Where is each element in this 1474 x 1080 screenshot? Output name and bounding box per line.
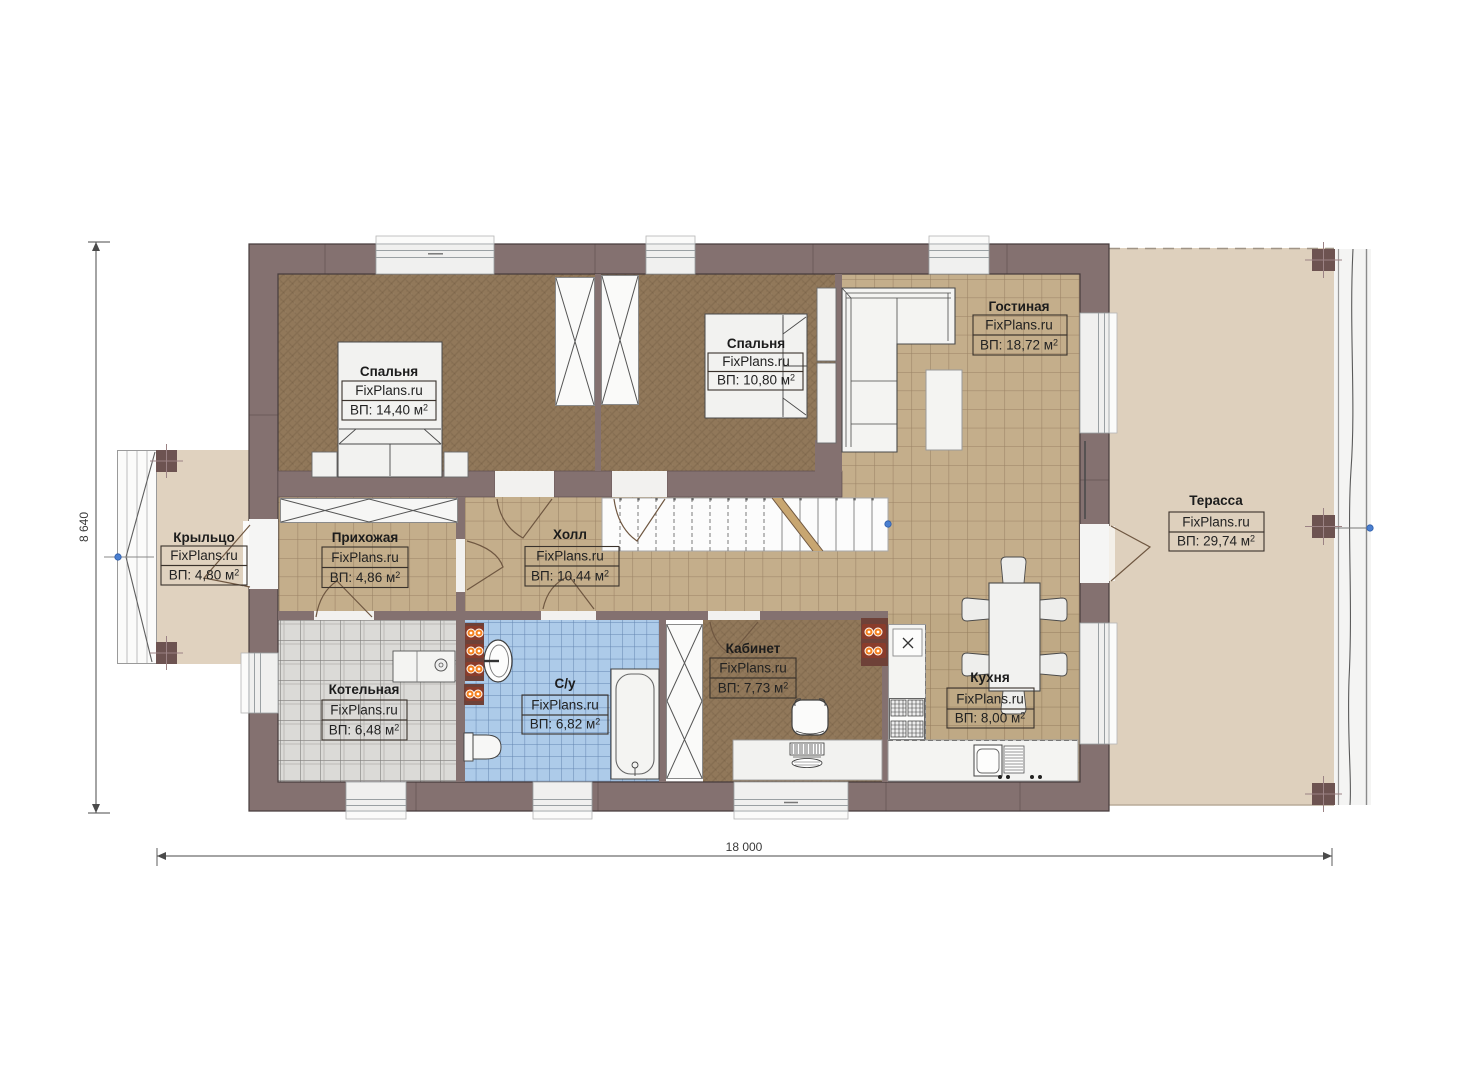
svg-text:Кухня: Кухня bbox=[970, 670, 1009, 685]
svg-text:Холл: Холл bbox=[553, 527, 587, 542]
svg-text:FixPlans.ru: FixPlans.ru bbox=[1182, 515, 1250, 530]
svg-text:FixPlans.ru: FixPlans.ru bbox=[531, 698, 599, 713]
svg-text:ВП: 4,86 м2: ВП: 4,86 м2 bbox=[330, 570, 401, 585]
svg-text:FixPlans.ru: FixPlans.ru bbox=[722, 354, 790, 369]
svg-text:С/у: С/у bbox=[554, 676, 576, 691]
svg-text:ВП: 29,74 м2: ВП: 29,74 м2 bbox=[1177, 534, 1255, 549]
svg-text:ВП: 10,44 м2: ВП: 10,44 м2 bbox=[531, 569, 609, 584]
svg-text:8 640: 8 640 bbox=[77, 512, 91, 542]
svg-text:FixPlans.ru: FixPlans.ru bbox=[536, 549, 604, 564]
svg-text:FixPlans.ru: FixPlans.ru bbox=[719, 661, 787, 676]
svg-text:ВП: 10,80 м2: ВП: 10,80 м2 bbox=[717, 373, 795, 388]
svg-text:ВП: 7,73 м2: ВП: 7,73 м2 bbox=[718, 681, 789, 696]
svg-text:ВП: 14,40 м2: ВП: 14,40 м2 bbox=[350, 403, 428, 418]
svg-text:ВП: 18,72 м2: ВП: 18,72 м2 bbox=[980, 338, 1058, 353]
svg-text:Прихожая: Прихожая bbox=[332, 530, 399, 545]
svg-text:FixPlans.ru: FixPlans.ru bbox=[330, 703, 398, 718]
svg-text:FixPlans.ru: FixPlans.ru bbox=[355, 383, 423, 398]
svg-text:ВП: 6,82 м2: ВП: 6,82 м2 bbox=[530, 717, 601, 732]
svg-text:ВП: 8,00 м2: ВП: 8,00 м2 bbox=[955, 711, 1026, 726]
svg-text:Спальня: Спальня bbox=[727, 336, 785, 351]
svg-text:FixPlans.ru: FixPlans.ru bbox=[170, 548, 238, 563]
svg-text:ВП: 6,48 м2: ВП: 6,48 м2 bbox=[329, 723, 400, 738]
svg-text:Терасса: Терасса bbox=[1189, 493, 1243, 508]
svg-text:Гостиная: Гостиная bbox=[988, 299, 1049, 314]
svg-text:FixPlans.ru: FixPlans.ru bbox=[956, 692, 1024, 707]
svg-text:FixPlans.ru: FixPlans.ru bbox=[331, 550, 399, 565]
svg-text:Крыльцо: Крыльцо bbox=[173, 530, 234, 545]
svg-text:FixPlans.ru: FixPlans.ru bbox=[985, 318, 1053, 333]
svg-text:ВП: 4,80 м2: ВП: 4,80 м2 bbox=[169, 568, 240, 583]
svg-text:Кабинет: Кабинет bbox=[726, 641, 781, 656]
svg-text:Спальня: Спальня bbox=[360, 364, 418, 379]
svg-text:Котельная: Котельная bbox=[329, 682, 400, 697]
svg-text:18 000: 18 000 bbox=[726, 840, 763, 854]
